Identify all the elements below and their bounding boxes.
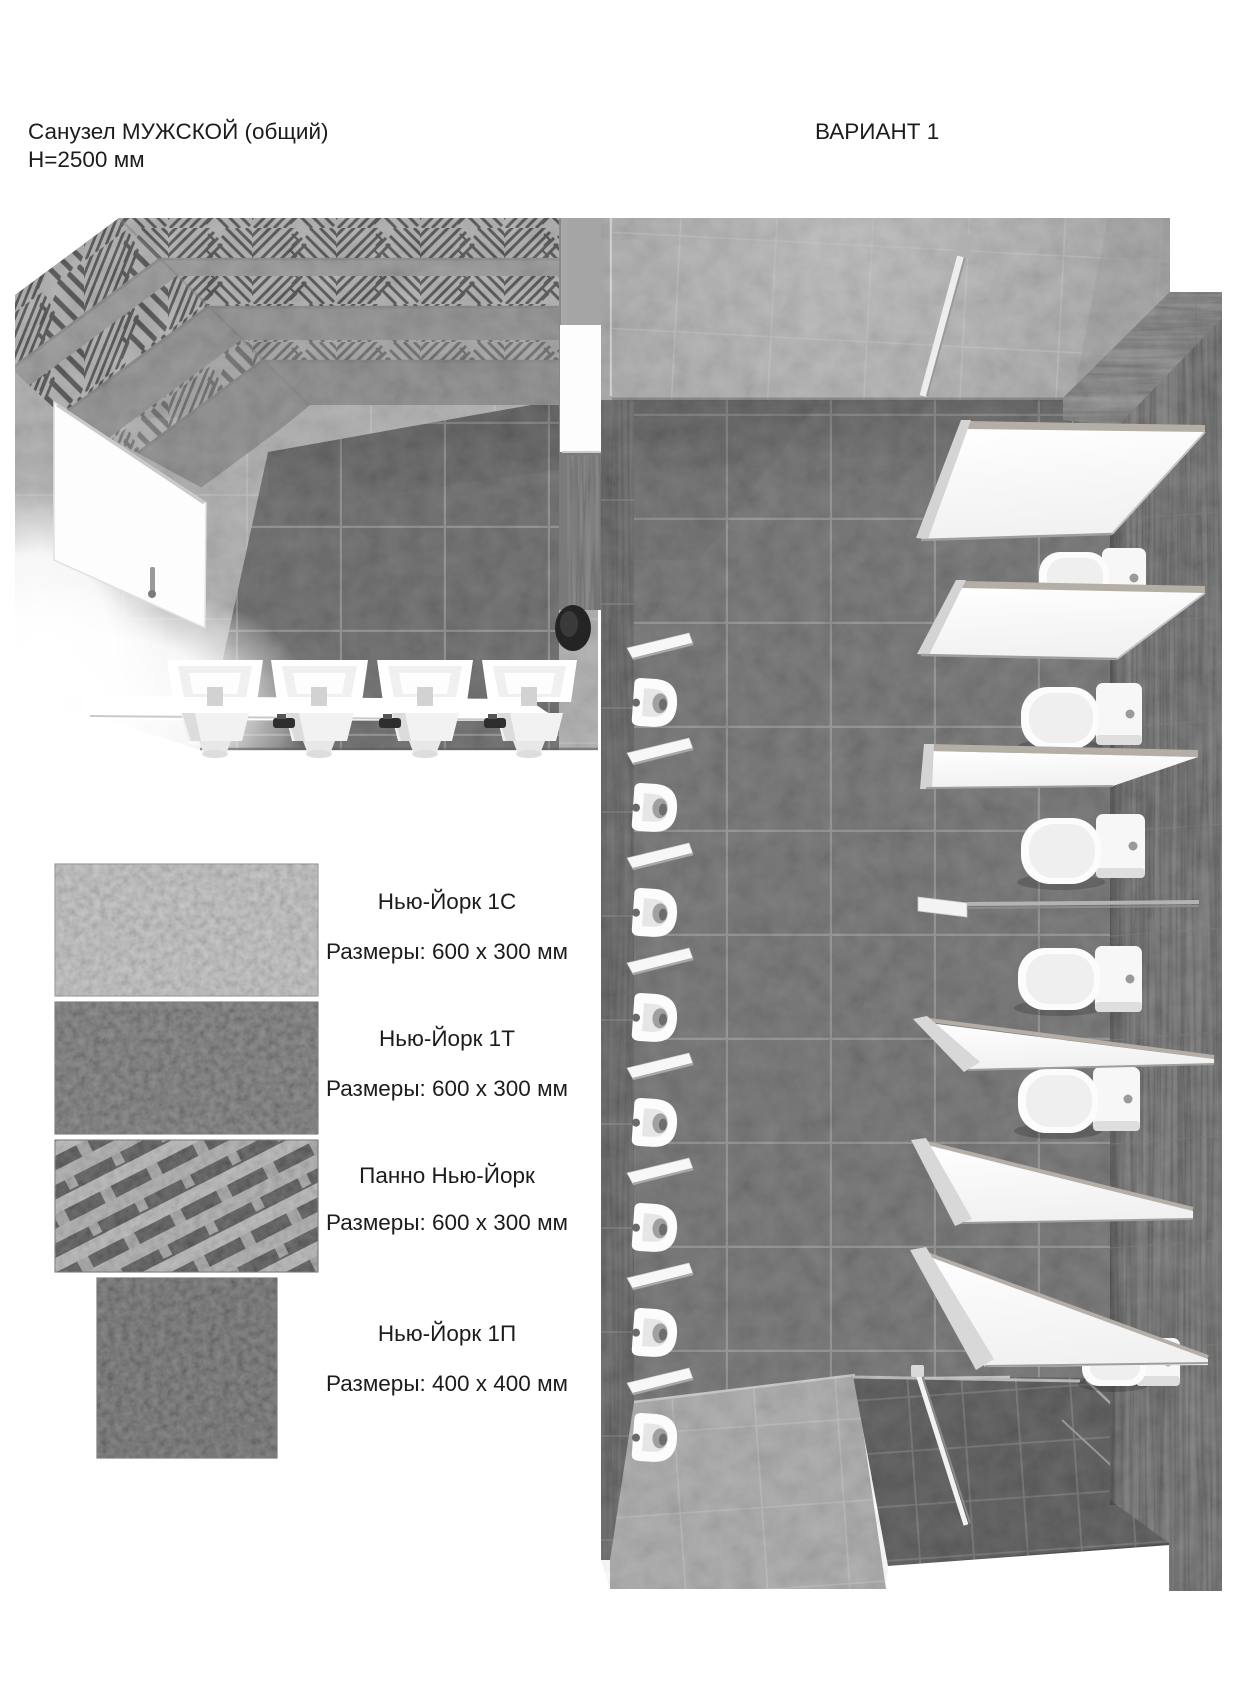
svg-text:Размеры: 600 х 300 мм: Размеры: 600 х 300 мм [326, 1076, 568, 1101]
svg-text:Санузел МУЖСКОЙ (общий): Санузел МУЖСКОЙ (общий) [28, 119, 329, 144]
svg-text:ВАРИАНТ 1: ВАРИАНТ 1 [815, 119, 939, 144]
svg-text:Размеры: 600 х 300 мм: Размеры: 600 х 300 мм [326, 939, 568, 964]
svg-text:Н=2500 мм: Н=2500 мм [28, 147, 145, 172]
svg-text:Размеры: 400 х 400 мм: Размеры: 400 х 400 мм [326, 1371, 568, 1396]
svg-text:Панно Нью-Йорк: Панно Нью-Йорк [359, 1163, 535, 1188]
svg-text:Нью-Йорк 1С: Нью-Йорк 1С [378, 889, 516, 914]
svg-text:Размеры: 600 х 300 мм: Размеры: 600 х 300 мм [326, 1210, 568, 1235]
svg-text:Нью-Йорк 1Т: Нью-Йорк 1Т [379, 1026, 515, 1051]
svg-text:Нью-Йорк 1П: Нью-Йорк 1П [378, 1321, 516, 1346]
